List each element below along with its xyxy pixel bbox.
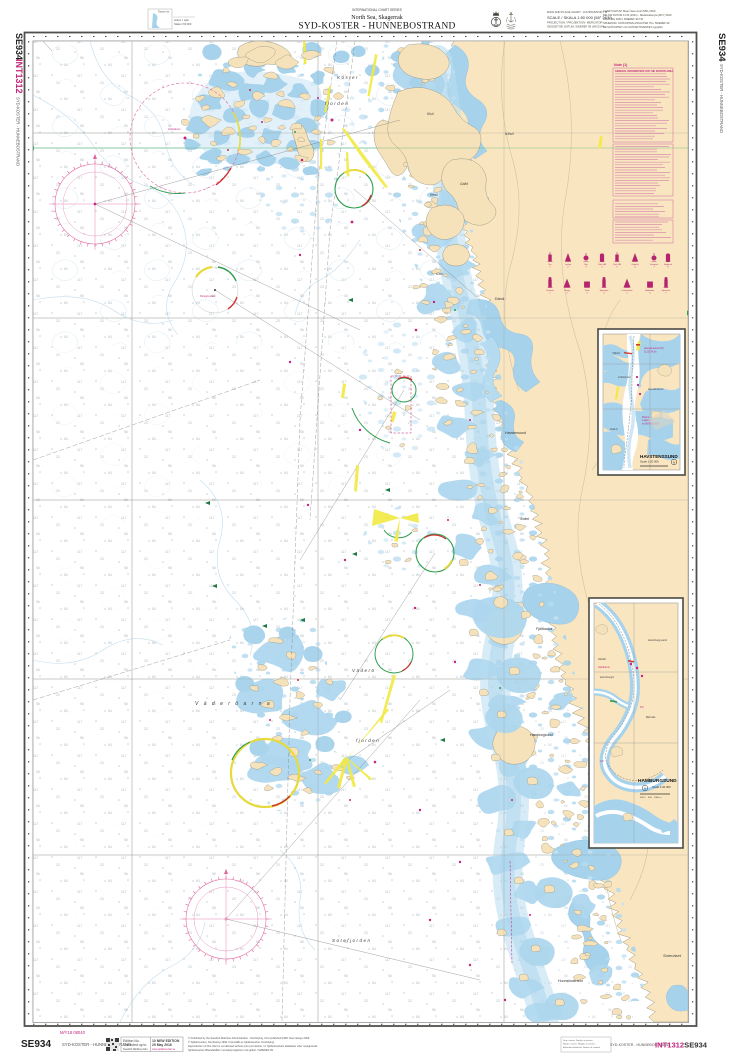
svg-text:INTERNATIONAL CHART SERIES: INTERNATIONAL CHART SERIES xyxy=(352,8,401,12)
svg-text:Sotenäset: Sotenäset xyxy=(663,953,682,958)
svg-text:Hunnebostrand: Hunnebostrand xyxy=(558,979,583,983)
svg-text:North Sea, Skagerrak: North Sea, Skagerrak xyxy=(351,15,402,21)
svg-text:Havstenssund fyr: Havstenssund fyr xyxy=(644,346,664,350)
svg-text:SE934: SE934 xyxy=(716,33,727,62)
svg-text:LAND: RH 2000 I SWEREF 99 TM: LAND: RH 2000 I SWEREF 99 TM xyxy=(603,17,643,21)
svg-text:CHART DATUM: Mean Sea Level (M: CHART DATUM: Mean Sea Level (MSL) RH0 xyxy=(603,9,656,13)
svg-text:Lökholmen: Lökholmen xyxy=(618,375,631,379)
svg-text:Ostprick: Ostprick xyxy=(631,263,640,266)
svg-text:HAVSTENSSUND: HAVSTENSSUND xyxy=(640,454,678,459)
svg-text:Reproduction of this chart is: Reproduction of this chart is not allowe… xyxy=(188,1044,318,1048)
svg-text:SYD-KOSTER - HUNNEBOSTRAND: SYD-KOSTER - HUNNEBOSTRAND xyxy=(719,64,724,133)
svg-text:Björnäs: Björnäs xyxy=(646,715,656,719)
svg-text:SE934: SE934 xyxy=(14,33,24,60)
svg-text:Edsvik: Edsvik xyxy=(495,297,505,301)
svg-text:Slottet: Slottet xyxy=(520,517,529,521)
svg-text:Slottet: Slottet xyxy=(598,657,606,661)
svg-text:Scale 1:20 000: Scale 1:20 000 xyxy=(652,785,671,789)
svg-text:Stång: Stång xyxy=(564,289,570,292)
svg-text:SYD-KOSTER - HUNNEBOSTRAND: SYD-KOSTER - HUNNEBOSTRAND xyxy=(298,22,455,32)
svg-text:Djup i meter. Depths in metres: Djup i meter. Depths in metres. xyxy=(563,1039,593,1042)
svg-text:Q (2) W 5s: Q (2) W 5s xyxy=(644,349,657,353)
svg-text:N: N xyxy=(673,460,675,464)
svg-text:Västprick: Västprick xyxy=(650,263,660,266)
svg-text:Fyr: Fyr xyxy=(548,263,551,266)
svg-text:V ä d e r ö a r n a: V ä d e r ö a r n a xyxy=(195,701,272,707)
svg-text:HAMBURGSUND: HAMBURGSUND xyxy=(638,778,677,784)
svg-text:GENERAL INFORMATION FOR THE KO: GENERAL INFORMATION FOR THE KOSTER AREA xyxy=(615,70,673,73)
svg-text:INT1312: INT1312 xyxy=(14,59,24,94)
svg-text:INT1312SE934: INT1312SE934 xyxy=(655,1041,708,1050)
svg-text:Kilsö: Kilsö xyxy=(505,131,514,136)
svg-text:Bottenbeskaffenhet. Nature of: Bottenbeskaffenhet. Nature of seabed. xyxy=(563,1046,601,1049)
svg-text:BELOW DATUM 0.4 M (2021) - Med: BELOW DATUM 0.4 M (2021) - Medelvattenyt… xyxy=(603,13,672,17)
svg-text:Prick HB: Prick HB xyxy=(598,263,607,266)
svg-text:Persgrunden: Persgrunden xyxy=(200,294,215,298)
svg-text:GEODETISK DATUM: SWEREF 99 (WG: GEODETISK DATUM: SWEREF 99 (WGS 84) xyxy=(547,24,605,28)
svg-text:Swedish Maritime Adm.: Swedish Maritime Adm. xyxy=(123,1048,148,1051)
svg-text:Tanum kn: Tanum kn xyxy=(158,10,170,14)
svg-text:Väderö: Väderö xyxy=(352,668,376,673)
svg-text:fjorden: fjorden xyxy=(325,101,349,106)
svg-text:Galtö: Galtö xyxy=(460,182,468,186)
svg-text:Caló: Caló xyxy=(436,272,443,276)
svg-text:SE SJÖKORTET och SJÖFARTSVERKE: SE SJÖKORTET och SJÖFARTSVERKET uppgifte… xyxy=(603,25,663,29)
svg-text:Sotefjorden: Sotefjorden xyxy=(332,938,372,943)
svg-text:N: N xyxy=(644,786,646,790)
svg-text:Sydprick: Sydprick xyxy=(664,263,673,266)
svg-text:SYD-KOSTER - HUNNEBOSTRAND: SYD-KOSTER - HUNNEBOSTRAND xyxy=(62,1042,131,1047)
svg-text:5,5: 5,5 xyxy=(640,705,644,709)
svg-text:M/Y18 08040: M/Y18 08040 xyxy=(60,1030,86,1035)
svg-text:Prick SB: Prick SB xyxy=(613,263,622,266)
svg-text:Corrected up to: Corrected up to xyxy=(123,1043,146,1047)
svg-text:SE934: SE934 xyxy=(21,1039,51,1050)
svg-text:500 0 500 1000 m: 500 0 500 1000 m xyxy=(640,797,661,799)
svg-text:Tjälsö: Tjälsö xyxy=(612,351,620,355)
svg-text:Hamburgsund: Hamburgsund xyxy=(530,733,553,737)
svg-text:Sjömärke: Sjömärke xyxy=(600,289,610,292)
svg-text:Klsö: Klsö xyxy=(427,112,434,116)
svg-text:Havstensund: Havstensund xyxy=(648,387,664,391)
svg-text:Hamburgö: Hamburgö xyxy=(600,675,614,679)
svg-text:fjorden: fjorden xyxy=(356,738,380,743)
svg-text:Gräns f. sjök.: Gräns f. sjök. xyxy=(174,18,190,22)
svg-text:Resö: Resö xyxy=(430,193,438,197)
svg-text:Kalvö: Kalvö xyxy=(610,427,618,431)
svg-text:SYD-KOSTER - HUNNEBOSTRAND: SYD-KOSTER - HUNNEBOSTRAND xyxy=(16,97,21,166)
svg-text:SPHEROID: SJÖKORTEN ANSLUTER T: SPHEROID: SJÖKORTEN ANSLUTER TILL SWEREF… xyxy=(603,21,670,25)
svg-text:Note (1): Note (1) xyxy=(614,63,628,67)
svg-text:MAIN AND PLACE CHART - DJUPKUR: MAIN AND PLACE CHART - DJUPKURVOR I M xyxy=(547,10,608,14)
svg-text:Höjder i meter. Heights in met: Höjder i meter. Heights in metres. xyxy=(563,1043,596,1046)
svg-text:3,8: 3,8 xyxy=(600,759,604,763)
svg-text:Hamburgsund: Hamburgsund xyxy=(648,638,667,642)
svg-text:© Sjöfartsverket, Norrköping 1: © Sjöfartsverket, Norrköping 1996. Frams… xyxy=(188,1040,275,1044)
svg-text:Punktmärke: Punktmärke xyxy=(621,289,633,292)
svg-text:Mittledsm.: Mittledsm. xyxy=(645,289,655,292)
svg-text:Koster: Koster xyxy=(337,75,359,80)
svg-text:Havstensund: Havstensund xyxy=(505,431,526,435)
svg-text:© Published by the Swedish Mar: © Published by the Swedish Maritime Admi… xyxy=(188,1036,310,1040)
svg-text:Fjällbacka: Fjällbacka xyxy=(536,627,552,631)
svg-text:Gästhamn: Gästhamn xyxy=(598,665,611,669)
svg-text:29 May 2016: 29 May 2016 xyxy=(152,1043,172,1047)
svg-text:Sjöfartsverket tillhandahåller: Sjöfartsverket tillhandahåller mercatorp… xyxy=(188,1048,274,1052)
svg-text:www.sjofartsverket.se: www.sjofartsverket.se xyxy=(152,1048,176,1051)
svg-text:Ursholmen: Ursholmen xyxy=(168,127,181,131)
svg-text:Skala 1:50 000: Skala 1:50 000 xyxy=(174,22,192,26)
svg-text:Scale 1:20 000: Scale 1:20 000 xyxy=(640,460,659,464)
